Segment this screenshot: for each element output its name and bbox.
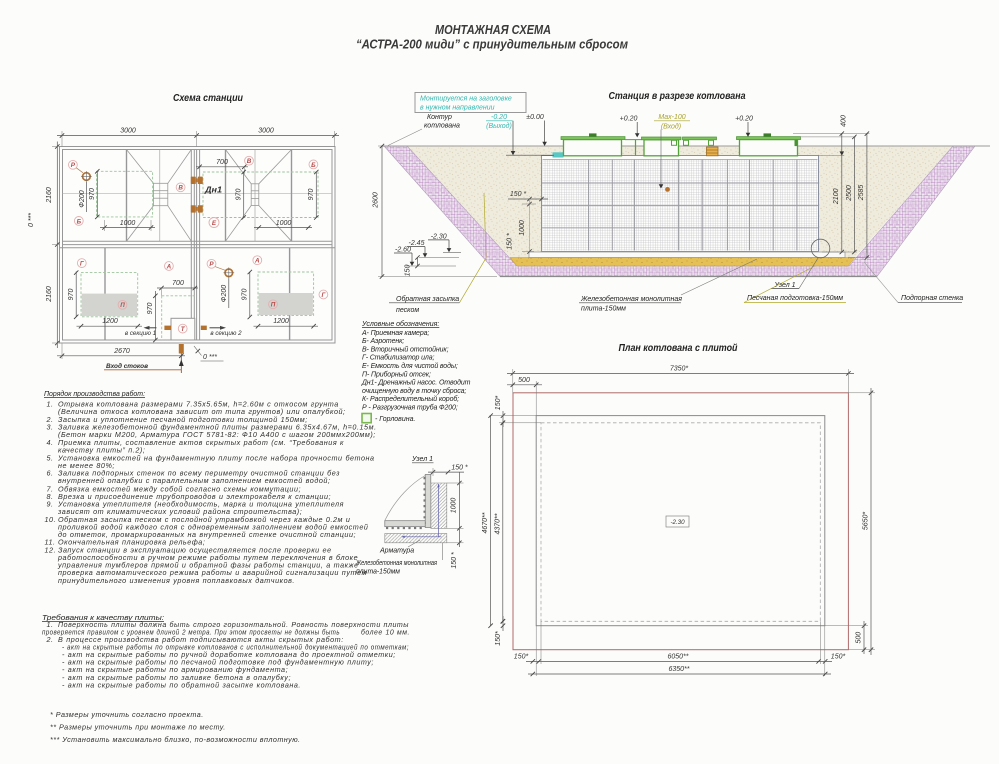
svg-text:+0.20: +0.20 [735,116,753,123]
svg-text:970: 970 [147,303,154,315]
svg-text:* Размеры уточнить согласно пр: * Размеры уточнить согласно проекта. [50,710,204,719]
svg-text:В: В [178,185,183,192]
svg-text:3.: 3. [47,422,54,431]
svg-text:-2.60: -2.60 [395,246,411,253]
svg-text:700: 700 [216,159,228,166]
svg-text:-0.20: -0.20 [491,114,507,121]
svg-text:в секцию 1: в секцию 1 [125,330,156,337]
svg-text:2160: 2160 [46,187,53,204]
svg-text:970: 970 [68,289,75,301]
svg-text:2585: 2585 [858,185,865,202]
svg-text:+0.20: +0.20 [620,116,638,123]
svg-text:Узел 1: Узел 1 [411,456,433,463]
svg-text:П: П [271,302,276,309]
svg-text:К- Распределительный короб;: К- Распределительный короб; [362,395,459,403]
svg-text:2.: 2. [46,635,54,644]
svg-text:Железобетонная монолитная: Железобетонная монолитная [355,559,437,567]
svg-text:Станция в разрезе котлована: Станция в разрезе котлована [609,91,746,102]
svg-text:МОНТАЖНАЯ СХЕМА: МОНТАЖНАЯ СХЕМА [435,23,551,37]
svg-text:970: 970 [89,188,96,200]
svg-text:плита-150мм: плита-150мм [581,306,626,313]
svg-text:В- Вторичный отстойник;: В- Вторичный отстойник; [362,345,449,353]
svg-text:12.: 12. [45,546,57,555]
svg-text:9.: 9. [47,499,54,508]
svg-text:970: 970 [236,189,243,201]
svg-text:150 *: 150 * [507,233,514,250]
svg-text:150*: 150* [514,654,529,661]
svg-text:Монтируется на заголовке: Монтируется на заголовке [420,96,512,103]
svg-text:970: 970 [308,189,315,201]
svg-text:- Горловина.: - Горловина. [375,416,415,423]
svg-text:2100: 2100 [833,188,840,205]
svg-text:2160: 2160 [46,286,53,303]
svg-text:Б: Б [77,218,82,225]
svg-text:Мах-100: Мах-100 [658,114,685,121]
svg-text:1.: 1. [47,399,54,408]
svg-text:700: 700 [172,280,184,287]
svg-text:Схема станции: Схема станции [173,93,243,104]
svg-text:1000: 1000 [519,220,526,236]
svg-text:Песчаная подготовка-150мм: Песчаная подготовка-150мм [747,294,843,302]
svg-text:П- Приборный отсек;: П- Приборный отсек; [362,370,431,378]
svg-text:“АСТРА-200 миди” с принудитель: “АСТРА-200 миди” с принудительным сбросо… [356,38,628,52]
svg-text:150: 150 [405,265,412,277]
svg-text:- акт на скрытые работы по обр: - акт на скрытые работы по обратной засы… [62,680,301,689]
svg-text:150*: 150* [495,631,502,646]
svg-text:150*: 150* [495,396,502,411]
svg-text:0 ***: 0 *** [28,213,35,227]
svg-text:Порядок производства работ:: Порядок производства работ: [44,390,145,398]
svg-text:1000: 1000 [276,220,292,227]
svg-text:7350*: 7350* [670,365,689,372]
svg-text:Б: Б [311,162,316,169]
svg-text:2500: 2500 [846,185,853,202]
svg-text:А: А [254,258,260,265]
svg-text:150 *: 150 * [451,465,468,472]
svg-text:А: А [166,263,172,270]
svg-text:Обратная засыпка: Обратная засыпка [396,295,459,303]
svg-text:Вход стоков: Вход стоков [106,362,148,370]
svg-text:Р - Разгрузочная труба Ф200;: Р - Разгрузочная труба Ф200; [362,404,458,412]
svg-text:970: 970 [242,289,249,301]
svg-text:песком: песком [396,307,419,314]
svg-text:План котлована с плитой: План котлована с плитой [619,343,738,354]
svg-text:6350**: 6350** [668,666,689,673]
svg-text:500: 500 [856,632,863,644]
svg-text:Железобетонная монолитная: Железобетонная монолитная [580,295,682,303]
svg-text:150 *: 150 * [451,552,458,569]
svg-text:5650*: 5650* [862,512,869,531]
svg-text:3000: 3000 [258,128,274,135]
svg-text:Контур: Контур [427,114,452,121]
svg-text:1000: 1000 [120,220,136,227]
svg-text:0 ***: 0 *** [203,354,217,361]
svg-text:более 10 мм.: более 10 мм. [361,628,410,637]
svg-text:(Вход): (Вход) [661,123,681,131]
svg-text:В: В [247,158,252,165]
svg-text:400: 400 [841,115,848,127]
svg-text:Арматура: Арматура [379,548,414,555]
svg-text:4.: 4. [47,438,54,447]
svg-text:2600: 2600 [373,192,380,209]
svg-text:котлована: котлована [424,123,460,130]
svg-text:Г- Стабилизатор ила;: Г- Стабилизатор ила; [362,354,434,362]
svg-text:1200: 1200 [273,318,289,325]
svg-text:*** Установить максимально бли: *** Установить максимально близко, по-во… [50,735,301,744]
svg-text:Подпорная стенка: Подпорная стенка [901,294,963,302]
svg-text:** Размеры уточнить при монтаж: ** Размеры уточнить при монтаже по месту… [50,723,226,732]
svg-text:Б- Аэротенк;: Б- Аэротенк; [362,338,404,345]
svg-text:в нужном направлении: в нужном направлении [420,105,495,112]
svg-text:500: 500 [518,377,530,384]
svg-text:очищенную воду в точку сброса;: очищенную воду в точку сброса; [362,387,466,395]
svg-text:Е- Емкость для чистой воды;: Е- Емкость для чистой воды; [362,362,458,370]
svg-text:6050**: 6050** [667,654,688,661]
svg-text:150*: 150* [831,654,846,661]
svg-text:4370**: 4370** [495,513,502,534]
svg-text:Дн1- Дренажный насос. Отводит: Дн1- Дренажный насос. Отводит [361,379,471,387]
svg-text:А- Приемная камера;: А- Приемная камера; [361,330,429,337]
svg-text:3000: 3000 [120,128,136,135]
svg-text:-2.30: -2.30 [431,233,447,240]
svg-text:1000: 1000 [451,498,458,514]
svg-text:П: П [120,302,125,309]
svg-text:принудительного изменения уров: принудительного изменения уровня поплавк… [58,576,295,585]
svg-text:в секцию 2: в секцию 2 [210,330,242,337]
svg-text:2670: 2670 [113,348,130,355]
svg-text:10.: 10. [45,515,57,524]
svg-text:-2.30: -2.30 [670,519,685,526]
svg-text:5.: 5. [47,454,54,463]
svg-text:4670**: 4670** [482,512,489,533]
svg-text:6.: 6. [47,469,54,478]
svg-text:Условные обозначения:: Условные обозначения: [361,320,439,328]
svg-text:Ф200: Ф200 [221,285,228,302]
svg-text:150 *: 150 * [510,191,527,198]
svg-text:Дн1: Дн1 [204,186,223,195]
svg-text:±0.00: ±0.00 [526,114,544,121]
svg-text:Ф200: Ф200 [79,190,86,207]
svg-text:(Выход): (Выход) [486,122,512,130]
svg-text:1200: 1200 [102,318,118,325]
